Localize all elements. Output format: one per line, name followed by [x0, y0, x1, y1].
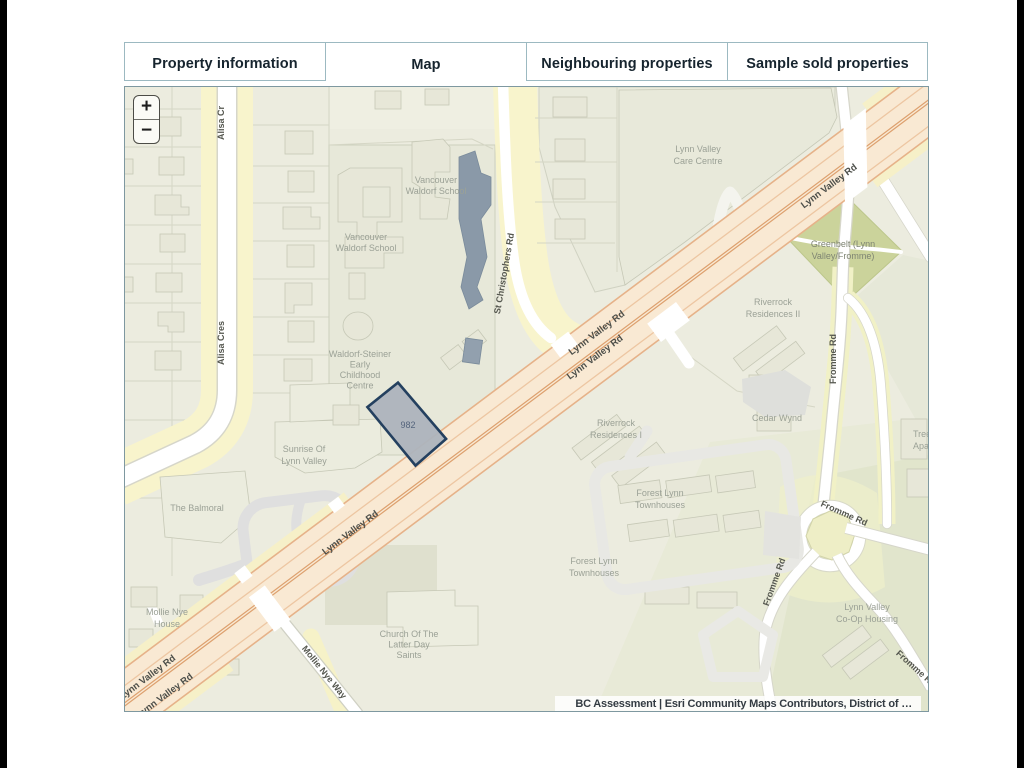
svg-text:Care Centre: Care Centre: [673, 156, 722, 166]
svg-text:House: House: [154, 619, 180, 629]
svg-text:Riverrock: Riverrock: [754, 297, 793, 307]
svg-text:Townhouses: Townhouses: [569, 568, 620, 578]
svg-text:Sunrise Of: Sunrise Of: [283, 444, 326, 454]
svg-text:Forest Lynn: Forest Lynn: [570, 556, 617, 566]
svg-text:982: 982: [400, 420, 415, 430]
svg-text:Cedar Wynd: Cedar Wynd: [752, 413, 802, 423]
svg-text:Greenbelt (Lynn: Greenbelt (Lynn: [811, 239, 875, 249]
svg-text:Tree Ly: Tree Ly: [913, 429, 928, 439]
svg-text:Latter Day: Latter Day: [388, 640, 430, 650]
svg-text:Fromme Rd: Fromme Rd: [828, 334, 838, 384]
svg-text:Alisa Cres: Alisa Cres: [216, 321, 226, 365]
svg-text:Waldorf School: Waldorf School: [336, 243, 397, 253]
svg-text:Centre: Centre: [346, 381, 373, 391]
svg-text:Lynn Valley: Lynn Valley: [675, 144, 721, 154]
svg-text:Lynn Valley: Lynn Valley: [281, 456, 327, 466]
svg-text:Residences II: Residences II: [746, 309, 801, 319]
svg-text:Forest Lynn: Forest Lynn: [636, 488, 683, 498]
svg-text:Lynn Valley: Lynn Valley: [844, 602, 890, 612]
svg-text:Apartme: Apartme: [913, 441, 928, 451]
svg-text:Waldorf-Steiner: Waldorf-Steiner: [329, 349, 391, 359]
svg-text:Alisa Cr: Alisa Cr: [216, 106, 226, 141]
svg-text:Childhood: Childhood: [340, 370, 381, 380]
svg-text:Residences I: Residences I: [590, 430, 642, 440]
svg-text:Vancouver: Vancouver: [345, 232, 387, 242]
svg-text:Early: Early: [350, 360, 371, 370]
svg-text:Co-Op Housing: Co-Op Housing: [836, 614, 898, 624]
svg-text:Townhouses: Townhouses: [635, 500, 686, 510]
svg-text:Saints: Saints: [396, 650, 422, 660]
svg-text:BC Assessment | Esri Community: BC Assessment | Esri Community Maps Cont…: [575, 698, 912, 710]
svg-text:Riverrock: Riverrock: [597, 418, 636, 428]
svg-text:Mollie Nye: Mollie Nye: [146, 607, 188, 617]
svg-text:Church Of The: Church Of The: [380, 629, 439, 639]
svg-text:The Balmoral: The Balmoral: [170, 503, 224, 513]
svg-text:Valley/Fromme): Valley/Fromme): [812, 251, 875, 261]
svg-text:Waldorf School: Waldorf School: [406, 186, 467, 196]
svg-text:Vancouver: Vancouver: [415, 175, 457, 185]
